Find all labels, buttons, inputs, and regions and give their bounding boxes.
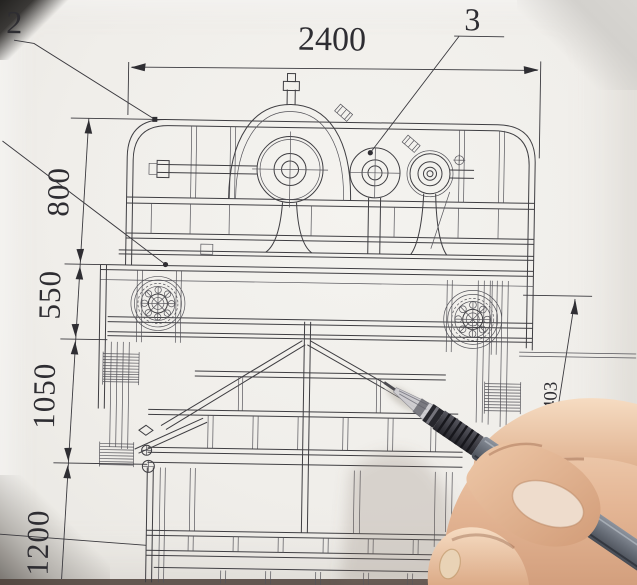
photo-of-engineering-drawing: 2400 800 550 1050 1200 1403 2: [0, 0, 637, 585]
left-dimension-1050-label: 1050: [26, 362, 62, 429]
callout-3-label: 3: [464, 1, 481, 37]
top-width-dimension-label: 2400: [298, 21, 367, 59]
stud-bolt: [402, 135, 420, 152]
right-vibration-exciter: [443, 290, 502, 349]
callouts: 2 3: [1, 0, 505, 272]
gearbox: [148, 71, 476, 255]
stud-bolt: [335, 104, 353, 121]
left-dimension-1200-label: 1200: [20, 509, 56, 576]
vibrating-screen-drawing: 2400 800 550 1050 1200 1403 2: [0, 0, 637, 585]
callout-2-label: 2: [6, 4, 23, 40]
left-dimension-550-label: 550: [32, 270, 68, 320]
left-dimension-800-label: 800: [40, 167, 76, 217]
